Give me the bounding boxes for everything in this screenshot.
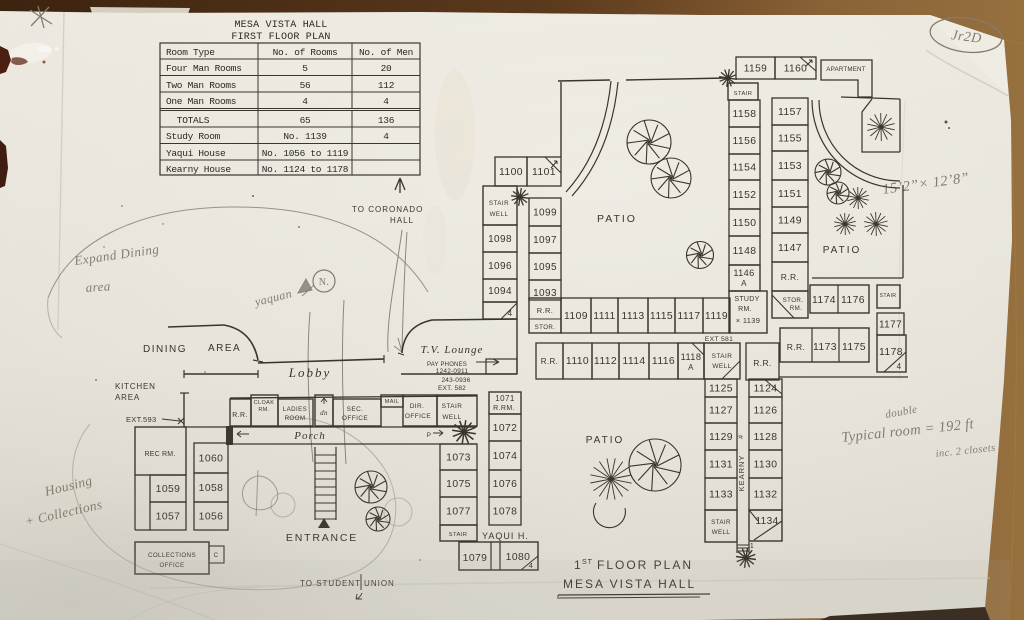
svg-text:1127: 1127: [709, 406, 733, 417]
svg-text:1133: 1133: [709, 490, 733, 501]
svg-text:Two Man Rooms: Two Man Rooms: [166, 80, 236, 91]
svg-text:1129: 1129: [709, 432, 733, 443]
svg-text:STAIR: STAIR: [880, 293, 897, 299]
svg-text:1159: 1159: [744, 64, 768, 75]
svg-text:1148: 1148: [733, 246, 757, 257]
svg-text:TO CORONADO: TO CORONADO: [352, 205, 423, 214]
svg-text:Room Type: Room Type: [166, 47, 215, 58]
svg-text:1099: 1099: [533, 208, 557, 219]
svg-text:WELL: WELL: [712, 529, 731, 536]
svg-text:1177: 1177: [879, 320, 902, 331]
svg-text:RM.: RM.: [738, 306, 752, 313]
svg-text:1147: 1147: [778, 243, 802, 254]
svg-text:1160: 1160: [784, 64, 808, 75]
svg-text:HALL: HALL: [390, 216, 414, 225]
svg-text:1125: 1125: [709, 384, 733, 395]
svg-text:1158: 1158: [733, 109, 757, 120]
svg-text:N.: N.: [319, 277, 330, 288]
svg-text:1151: 1151: [778, 189, 802, 200]
svg-text:4: 4: [302, 96, 308, 107]
svg-text:A: A: [741, 279, 747, 288]
svg-text:1096: 1096: [488, 261, 512, 272]
svg-text:1150: 1150: [733, 218, 757, 229]
svg-text:1100: 1100: [499, 167, 523, 178]
svg-text:PATIO: PATIO: [823, 245, 862, 256]
svg-text:1130: 1130: [754, 460, 778, 471]
svg-text:5: 5: [302, 63, 308, 74]
svg-text:KEARNY: KEARNY: [737, 455, 746, 492]
svg-text:1149: 1149: [778, 216, 802, 227]
svg-text:One Man Rooms: One Man Rooms: [166, 96, 236, 107]
svg-text:STAIR: STAIR: [711, 519, 731, 526]
svg-text:1101: 1101: [532, 167, 556, 178]
svg-text:1174: 1174: [812, 295, 836, 306]
svg-text:R.R.: R.R.: [781, 272, 800, 282]
svg-text:Yaqui House: Yaqui House: [166, 148, 226, 159]
svg-text:1155: 1155: [778, 134, 802, 145]
svg-text:136: 136: [378, 115, 395, 126]
svg-text:Study Room: Study Room: [166, 131, 221, 142]
svg-text:FIRST FLOOR PLAN: FIRST FLOOR PLAN: [231, 32, 330, 43]
svg-text:WELL: WELL: [712, 363, 731, 370]
svg-text:STAIR: STAIR: [712, 353, 733, 360]
svg-text:1097: 1097: [533, 235, 557, 246]
svg-text:1128: 1128: [754, 432, 778, 443]
svg-text:PATIO: PATIO: [597, 213, 637, 225]
svg-text:WELL: WELL: [490, 211, 509, 218]
svg-text:No. of Rooms: No. of Rooms: [273, 47, 338, 58]
svg-text:× 1139: × 1139: [736, 316, 760, 325]
svg-text:1153: 1153: [778, 161, 802, 172]
svg-text:4: 4: [383, 96, 389, 107]
svg-text:1132: 1132: [754, 490, 778, 501]
svg-text:1094: 1094: [488, 286, 512, 297]
svg-text:R.R.: R.R.: [753, 358, 772, 368]
svg-text:STAIR: STAIR: [489, 200, 509, 207]
svg-text:1156: 1156: [733, 136, 757, 147]
svg-text:area: area: [85, 278, 111, 295]
svg-text:4: 4: [383, 131, 389, 142]
svg-text:1157: 1157: [778, 107, 802, 118]
svg-text:65: 65: [300, 115, 311, 126]
svg-text:1178: 1178: [879, 347, 903, 358]
svg-text:1119: 1119: [705, 311, 728, 322]
svg-text:Kearny House: Kearny House: [166, 164, 231, 175]
svg-text:No. of Men: No. of Men: [359, 47, 413, 58]
svg-text:1124: 1124: [754, 384, 778, 395]
svg-text:112: 112: [378, 80, 395, 91]
svg-text:1146: 1146: [733, 268, 754, 278]
svg-text:R.R.: R.R.: [787, 342, 806, 352]
svg-text:STAIR: STAIR: [734, 91, 753, 97]
svg-text:TOTALS: TOTALS: [166, 115, 210, 126]
svg-text:1126: 1126: [754, 406, 778, 417]
svg-text:1: 1: [750, 543, 754, 550]
svg-text:APARTMENT: APARTMENT: [826, 66, 865, 73]
svg-text:No. 1139: No. 1139: [283, 131, 327, 142]
svg-text:1152: 1152: [733, 190, 757, 201]
svg-text:4: 4: [897, 362, 902, 371]
svg-text:1154: 1154: [733, 163, 757, 174]
svg-text:1131: 1131: [709, 460, 733, 471]
svg-text:STUDY: STUDY: [734, 296, 759, 303]
svg-text:56: 56: [300, 80, 311, 91]
svg-text:No. 1056 to 1119: No. 1056 to 1119: [262, 148, 349, 159]
svg-text:1176: 1176: [841, 295, 865, 306]
svg-text:Four Man Rooms: Four Man Rooms: [166, 63, 242, 74]
svg-text:1173: 1173: [813, 342, 837, 353]
svg-text:RM.: RM.: [790, 305, 803, 312]
svg-text:1175: 1175: [842, 342, 866, 353]
svg-text:STOR.: STOR.: [783, 297, 804, 304]
svg-text:20: 20: [381, 63, 392, 74]
svg-text:No. 1124 to 1178: No. 1124 to 1178: [262, 164, 349, 175]
svg-text:1098: 1098: [488, 234, 512, 245]
svg-text:EXT 581: EXT 581: [705, 336, 733, 343]
svg-text:1095: 1095: [533, 262, 557, 273]
svg-text:MESA VISTA HALL: MESA VISTA HALL: [234, 20, 327, 31]
